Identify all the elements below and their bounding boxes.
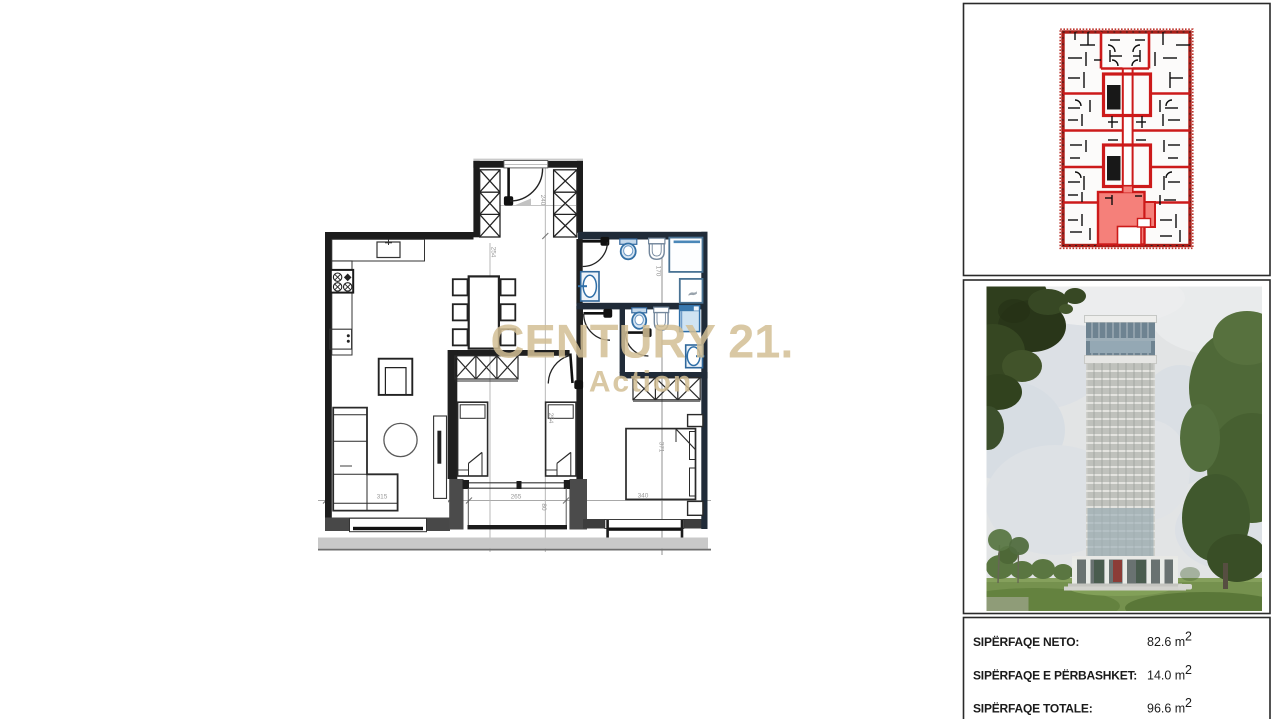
svg-text:CENTURY 21.: CENTURY 21. [491, 315, 794, 368]
svg-text:SIPËRFAQE E PËRBASHKET:: SIPËRFAQE E PËRBASHKET: [973, 668, 1137, 683]
svg-text:371: 371 [658, 442, 665, 453]
svg-text:82.6 m: 82.6 m [1147, 635, 1185, 649]
svg-text:2: 2 [1185, 663, 1192, 677]
svg-text:SIPËRFAQE TOTALE:: SIPËRFAQE TOTALE: [973, 701, 1093, 716]
svg-text:340: 340 [638, 493, 649, 500]
svg-text:80: 80 [540, 503, 547, 511]
svg-text:254: 254 [547, 413, 554, 424]
svg-text:265: 265 [511, 494, 522, 501]
svg-text:Action: Action [589, 366, 693, 399]
svg-text:315: 315 [377, 494, 388, 501]
svg-text:SIPËRFAQE NETO:: SIPËRFAQE NETO: [973, 634, 1079, 649]
svg-text:240: 240 [539, 195, 546, 206]
svg-text:2: 2 [1185, 630, 1192, 644]
svg-text:96.6 m: 96.6 m [1147, 702, 1185, 716]
svg-text:254: 254 [490, 247, 497, 258]
svg-text:14.0 m: 14.0 m [1147, 669, 1185, 683]
svg-text:2: 2 [1185, 696, 1192, 710]
svg-text:170: 170 [655, 266, 662, 277]
